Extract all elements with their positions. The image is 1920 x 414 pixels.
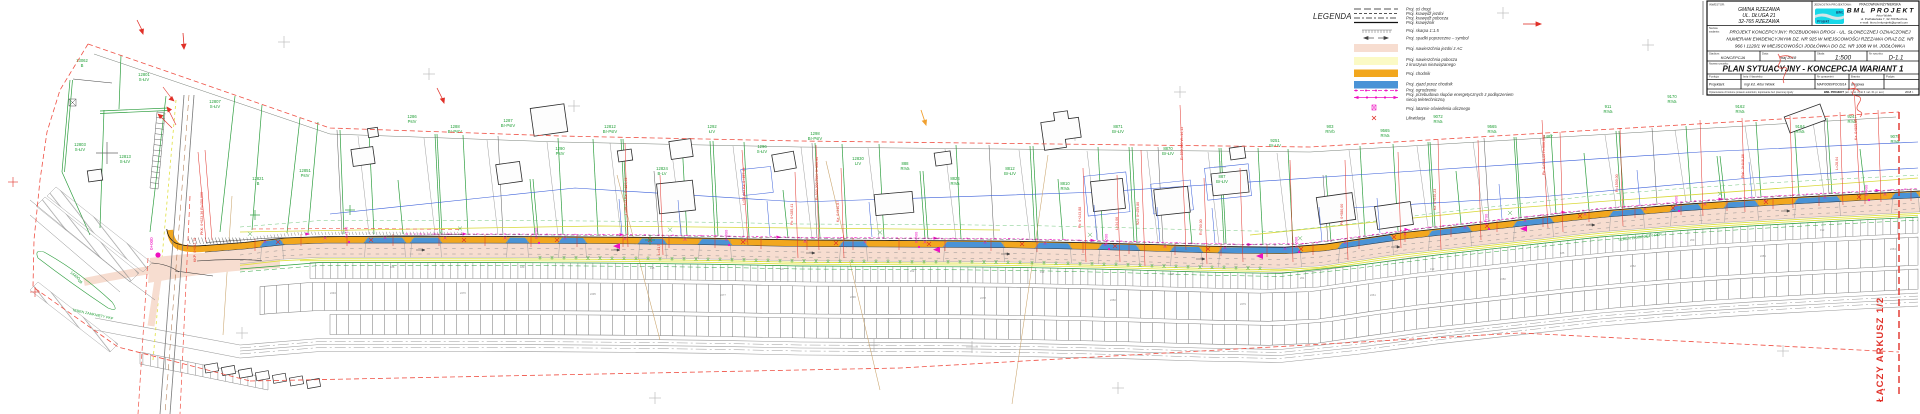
svg-text:PROJEKT KONCEPCYJNY: ROZBUDOWA: PROJEKT KONCEPCYJNY: ROZBUDOWA DROGI - U…	[1729, 30, 1911, 35]
svg-text:1:500: 1:500	[1835, 55, 1852, 62]
svg-text:2280: 2280	[1500, 277, 1506, 281]
svg-text:RIVa: RIVa	[1796, 129, 1806, 134]
svg-text:Projekt: Projekt	[1817, 20, 1830, 24]
svg-text:187: 187	[780, 267, 785, 271]
svg-text:202: 202	[910, 269, 915, 273]
svg-text:R=700,00: R=700,00	[1199, 219, 1203, 235]
svg-text:195: 195	[650, 266, 655, 270]
svg-text:RIVa: RIVa	[1381, 133, 1391, 138]
svg-text:Proj. spadki poprzeczne – symb: Proj. spadki poprzeczne – symbol	[1406, 36, 1470, 41]
svg-text:Skala:: Skala:	[1817, 52, 1825, 56]
svg-text:200: 200	[1690, 238, 1695, 242]
svg-text:ŁĄCZY ARKUSZ 1/2: ŁĄCZY ARKUSZ 1/2	[1875, 297, 1886, 402]
svg-text:NUMERAMI EWIDENCYJNYMI DZ. NR: NUMERAMI EWIDENCYJNYMI DZ. NR 925 W MIEJ…	[1726, 36, 1914, 42]
svg-text:Br-ŁIV: Br-ŁIV	[1216, 179, 1228, 184]
svg-text:Proj. chodnik: Proj. chodnik	[1406, 71, 1431, 76]
svg-text:2281: 2281	[1760, 254, 1766, 258]
svg-text:PsIV: PsIV	[301, 173, 310, 178]
svg-text:2261: 2261	[1370, 293, 1376, 297]
svg-text:RIVa: RIVa	[1434, 119, 1444, 124]
svg-text:2278: 2278	[980, 296, 986, 300]
svg-text:PRACOWNIA INŻYNIERSKA: PRACOWNIA INŻYNIERSKA	[1859, 2, 1901, 7]
svg-text:B: B	[257, 181, 260, 186]
svg-text:Funkcja: Funkcja	[1709, 75, 1719, 79]
svg-text:S-ŁIV: S-ŁIV	[210, 104, 221, 109]
svg-text:Data:: Data:	[1762, 52, 1769, 56]
svg-text:2296: 2296	[850, 295, 856, 299]
svg-text:KONCEPCJA: KONCEPCJA	[1721, 55, 1746, 60]
svg-text:KKP: 0+052,79: KKP: 0+052,79	[193, 238, 197, 262]
svg-text:L=58,443 Kz: 0+157,49: L=58,443 Kz: 0+157,49	[742, 168, 746, 205]
svg-text:R=1500,00: R=1500,00	[1615, 174, 1619, 192]
svg-text:L=41,5: L=41,5	[657, 244, 661, 255]
svg-text:0+100: 0+100	[344, 226, 349, 238]
svg-text:Proj. zjazd przez chodnik: Proj. zjazd przez chodnik	[1406, 82, 1453, 87]
svg-text:RIVa: RIVa	[951, 181, 961, 186]
svg-text:RIVa: RIVa	[1604, 109, 1614, 114]
svg-text:zadania:: zadania:	[1709, 30, 1720, 34]
svg-text:Kz: 0+640,23: Kz: 0+640,23	[1433, 189, 1437, 210]
svg-text:2260: 2260	[1110, 298, 1116, 302]
svg-text:0+200: 0+200	[534, 227, 539, 239]
svg-text:S-ŁIV: S-ŁIV	[75, 147, 86, 152]
svg-text:BML: BML	[1836, 11, 1844, 15]
svg-text:0+900: 0+900	[1864, 184, 1869, 196]
svg-text:RIVb: RIVb	[1325, 129, 1335, 134]
svg-text:0+700: 0+700	[1484, 213, 1489, 225]
svg-text:185: 185	[1560, 251, 1565, 255]
svg-text:Pk: 0+285,41: Pk: 0+285,41	[790, 204, 794, 225]
svg-text:Nr rysunku:: Nr rysunku:	[1869, 52, 1884, 56]
svg-text:Pk: 0+243,88: Pk: 0+243,88	[1078, 207, 1082, 228]
svg-text:e-mail: biuro.bmlprojekt@gmail: e-mail: biuro.bmlprojekt@gmail.com	[1860, 21, 1908, 25]
svg-text:Br-PsIV: Br-PsIV	[603, 129, 618, 134]
svg-text:Nr uprawnień: Nr uprawnień	[1817, 75, 1834, 79]
svg-text:LEGENDA: LEGENDA	[1313, 12, 1352, 21]
svg-text:2277: 2277	[720, 293, 726, 297]
svg-text:Br-ŁIV: Br-ŁIV	[1112, 129, 1124, 134]
svg-text:Opracowanie chronione prawem a: Opracowanie chronione prawem autorskim, …	[1709, 91, 1794, 94]
svg-text:0+300: 0+300	[724, 229, 729, 241]
svg-text:MAP/0099/POOS/14: MAP/0099/POOS/14	[1817, 83, 1847, 87]
svg-text:188: 188	[390, 265, 395, 269]
svg-text:966 I 1120/1 W MIEJSCOWOŚCI JO: 966 I 1120/1 W MIEJSCOWOŚCI JODŁÓWKA DO …	[1735, 43, 1905, 49]
svg-text:Stadium:: Stadium:	[1709, 52, 1720, 56]
svg-text:2262: 2262	[1630, 264, 1636, 268]
svg-text:BML PROJEKT: BML PROJEKT	[1824, 90, 1844, 94]
svg-text:Br-PsIV: Br-PsIV	[808, 136, 823, 141]
svg-text:PsIV: PsIV	[556, 151, 565, 156]
svg-text:Br-ŁIV: Br-ŁIV	[1004, 171, 1016, 176]
svg-text:Br-PsIV: Br-PsIV	[501, 123, 516, 128]
svg-text:Likwidacja: Likwidacja	[1406, 116, 1426, 121]
svg-text:Podpis: Podpis	[1886, 75, 1895, 79]
svg-text:S-ŁIV: S-ŁIV	[139, 77, 150, 82]
svg-text:0+600: 0+600	[1294, 236, 1299, 248]
svg-text:Pk: 0+580,00: Pk: 0+580,00	[1340, 204, 1344, 225]
svg-text:D-1.1: D-1.1	[1889, 56, 1904, 62]
svg-text:PLAN SYTUACYJNY - KONCEPCJA WA: PLAN SYTUACYJNY - KONCEPCJA WARIANT 1	[1723, 65, 1904, 74]
svg-text:Kz: 0+310,87: Kz: 0+310,87	[836, 201, 840, 222]
svg-text:Br-ŁIV: Br-ŁIV	[1269, 143, 1281, 148]
svg-text:B: B	[81, 63, 84, 68]
svg-text:Proj. krawężnik: Proj. krawężnik	[1406, 20, 1435, 25]
svg-text:186: 186	[1170, 272, 1175, 276]
svg-text:193: 193	[1430, 267, 1435, 271]
svg-text:Br-PsIV: Br-PsIV	[448, 129, 463, 134]
svg-text:2279: 2279	[1240, 302, 1246, 306]
svg-text:Proj. nawierzchnia jezdni z AC: Proj. nawierzchnia jezdni z AC	[1406, 46, 1463, 51]
svg-text:Imię i Nazwisko: Imię i Nazwisko	[1743, 75, 1763, 79]
svg-text:PbK: 0+846,86: PbK: 0+846,86	[1741, 154, 1745, 178]
svg-text:2263: 2263	[1890, 247, 1896, 251]
svg-text:RIVa: RIVa	[1668, 99, 1678, 104]
svg-text:PsIV: PsIV	[408, 119, 417, 124]
svg-text:194: 194	[1040, 270, 1045, 274]
svg-text:L=28,04: L=28,04	[1835, 157, 1839, 170]
svg-text:Branża: Branża	[1851, 75, 1860, 79]
svg-text:0+000: 0+000	[149, 237, 154, 250]
svg-text:INWESTOR:: INWESTOR:	[1709, 3, 1725, 7]
svg-text:JEDNOSTKA PROJEKTOWA:: JEDNOSTKA PROJEKTOWA:	[1814, 3, 1852, 7]
svg-text:0+400: 0+400	[914, 231, 919, 243]
svg-text:2018 r.: 2018 r.	[1905, 90, 1914, 94]
svg-text:RIVa: RIVa	[1736, 109, 1746, 114]
svg-text:mgr inż. Artur Wołek: mgr inż. Artur Wołek	[1744, 83, 1775, 87]
svg-text:B-LV: B-LV	[658, 171, 667, 176]
svg-text:924: 0+459,80: 924: 0+459,80	[1136, 202, 1140, 225]
svg-text:180: 180	[520, 265, 525, 269]
svg-text:0+800: 0+800	[1674, 195, 1679, 207]
svg-text:Projektant: Projektant	[1709, 83, 1724, 87]
svg-text:RIVa: RIVa	[1488, 129, 1498, 134]
svg-text:0+500: 0+500	[1104, 233, 1109, 245]
svg-text:32-765 RZEZAWA: 32-765 RZEZAWA	[1738, 19, 1780, 25]
svg-text:S-ŁIV: S-ŁIV	[120, 159, 131, 164]
svg-text:(art. 1 ust. 2 pkt 6 i art. 61: (art. 1 ust. 2 pkt 6 i art. 61 pr. aut.)	[1845, 90, 1884, 94]
svg-text:siecią teletechniczną: siecią teletechniczną	[1406, 97, 1445, 102]
svg-text:S-ŁIV: S-ŁIV	[757, 149, 768, 154]
svg-text:RIVa: RIVa	[1061, 186, 1071, 191]
svg-text:LIV: LIV	[855, 161, 861, 166]
svg-text:ŁIV: ŁIV	[709, 129, 715, 134]
svg-text:192: 192	[1820, 228, 1825, 232]
svg-text:201: 201	[1300, 276, 1305, 280]
svg-text:RIVa: RIVa	[901, 166, 911, 171]
svg-text:Proj. skarpa 1:1.5: Proj. skarpa 1:1.5	[1406, 28, 1439, 33]
svg-text:z kruszywa niezwiązanego: z kruszywa niezwiązanego	[1405, 62, 1456, 67]
svg-text:Proj. latarnie oświetlenia uli: Proj. latarnie oświetlenia ulicznego	[1406, 106, 1471, 111]
svg-text:2295: 2295	[590, 292, 596, 296]
svg-text:Br-ŁIV: Br-ŁIV	[1162, 151, 1174, 156]
svg-text:2276: 2276	[460, 291, 466, 295]
svg-text:2294: 2294	[330, 291, 336, 295]
